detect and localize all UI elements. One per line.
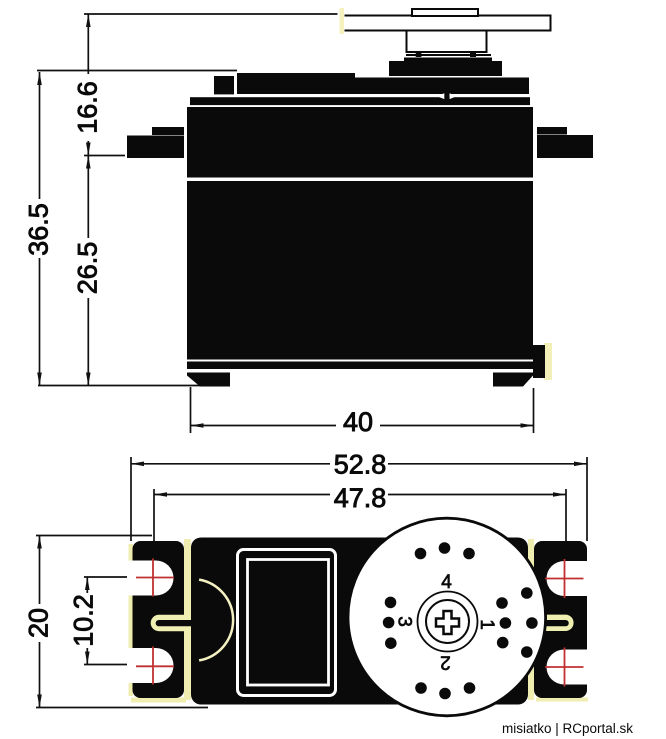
svg-text:26.5: 26.5 — [72, 242, 102, 295]
svg-text:40: 40 — [343, 407, 373, 437]
svg-text:4: 4 — [441, 572, 452, 593]
svg-text:misiatko | RCportal.sk: misiatko | RCportal.sk — [502, 721, 633, 736]
svg-text:52.8: 52.8 — [334, 450, 387, 480]
svg-text:47.8: 47.8 — [334, 483, 387, 513]
svg-text:2: 2 — [440, 652, 451, 673]
svg-text:16.6: 16.6 — [72, 81, 102, 134]
svg-text:3: 3 — [394, 616, 415, 627]
svg-text:1: 1 — [476, 619, 497, 630]
svg-text:10.2: 10.2 — [69, 594, 99, 647]
svg-text:36.5: 36.5 — [24, 203, 54, 256]
svg-text:20: 20 — [24, 608, 54, 638]
